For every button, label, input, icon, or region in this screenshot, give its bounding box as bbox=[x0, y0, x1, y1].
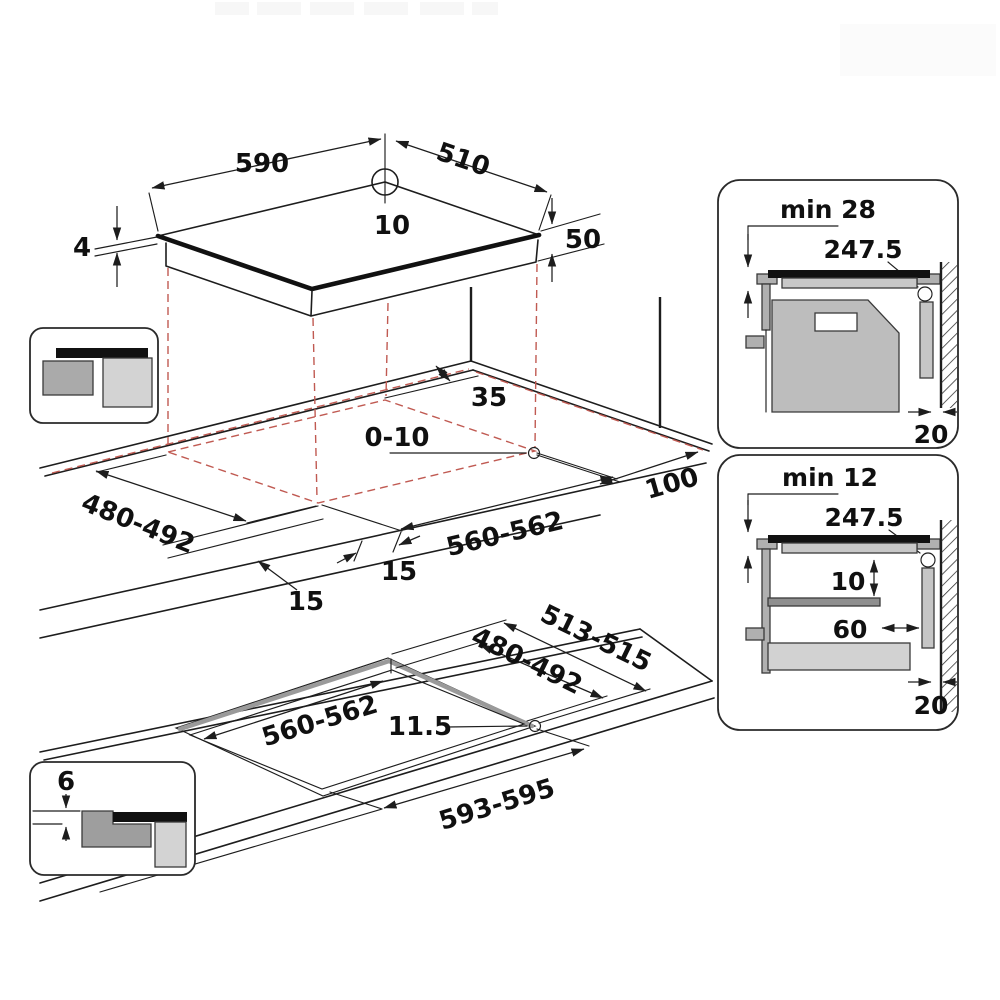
dim-glass-thickness: 4 bbox=[73, 233, 91, 263]
dim-rear-gap-oven: 20 bbox=[914, 420, 949, 449]
label-center-width-drawer: 247.5 bbox=[824, 503, 903, 532]
wall-hatching bbox=[941, 262, 957, 408]
dim-hob-width: 590 bbox=[235, 149, 289, 179]
dim-shelf-setback: 60 bbox=[833, 615, 868, 644]
hob-glass-bar-2 bbox=[768, 535, 930, 543]
hob-body-bar-2 bbox=[782, 543, 917, 553]
label-min-gap-drawer: min 12 bbox=[782, 463, 878, 492]
clearance-panel-drawer: min 12 247.5 10 60 20 bbox=[718, 455, 958, 730]
diagram-canvas: 10 590 510 4 50 bbox=[0, 0, 1000, 1000]
dim-shelf-gap: 10 bbox=[831, 567, 866, 596]
dim-wall-clearance: 35 bbox=[471, 383, 507, 413]
rear-spacer bbox=[920, 302, 933, 378]
hob-body-section bbox=[103, 358, 152, 407]
shelf-section bbox=[768, 598, 880, 606]
flush-hob-body-section bbox=[155, 822, 186, 867]
flush-glass-section bbox=[113, 812, 187, 822]
dim-side-overhang: 15 bbox=[381, 557, 417, 587]
inset-surface-mount-detail bbox=[30, 328, 158, 423]
dim-front-overhang: 15 bbox=[288, 587, 324, 617]
label-min-gap-oven: min 28 bbox=[780, 195, 876, 224]
dim-hob-to-wall: 0-10 bbox=[364, 423, 429, 453]
hob-glass-bar bbox=[768, 270, 930, 278]
dim-center-offset: 10 bbox=[374, 211, 410, 241]
rear-spacer-2 bbox=[922, 568, 934, 648]
hob-body-bar bbox=[782, 278, 917, 288]
label-center-width-oven: 247.5 bbox=[823, 235, 902, 264]
dim-body-height: 50 bbox=[565, 225, 601, 255]
dim-corner-radius: 11.5 bbox=[388, 712, 452, 742]
installation-diagram: { "top_view": { "width": "590", "depth":… bbox=[0, 0, 1000, 1000]
drawer-section bbox=[768, 643, 910, 670]
glass-section bbox=[56, 348, 148, 358]
wall-hatching-2 bbox=[941, 520, 957, 712]
dim-rebate-step: 6 bbox=[57, 767, 75, 797]
worktop-section bbox=[43, 361, 93, 395]
oven-vent bbox=[815, 313, 857, 331]
clearance-panel-oven: min 28 247.5 20 bbox=[718, 180, 958, 449]
inset-flush-mount-detail: 6 bbox=[30, 762, 195, 875]
dim-rear-gap-drawer: 20 bbox=[914, 691, 949, 720]
